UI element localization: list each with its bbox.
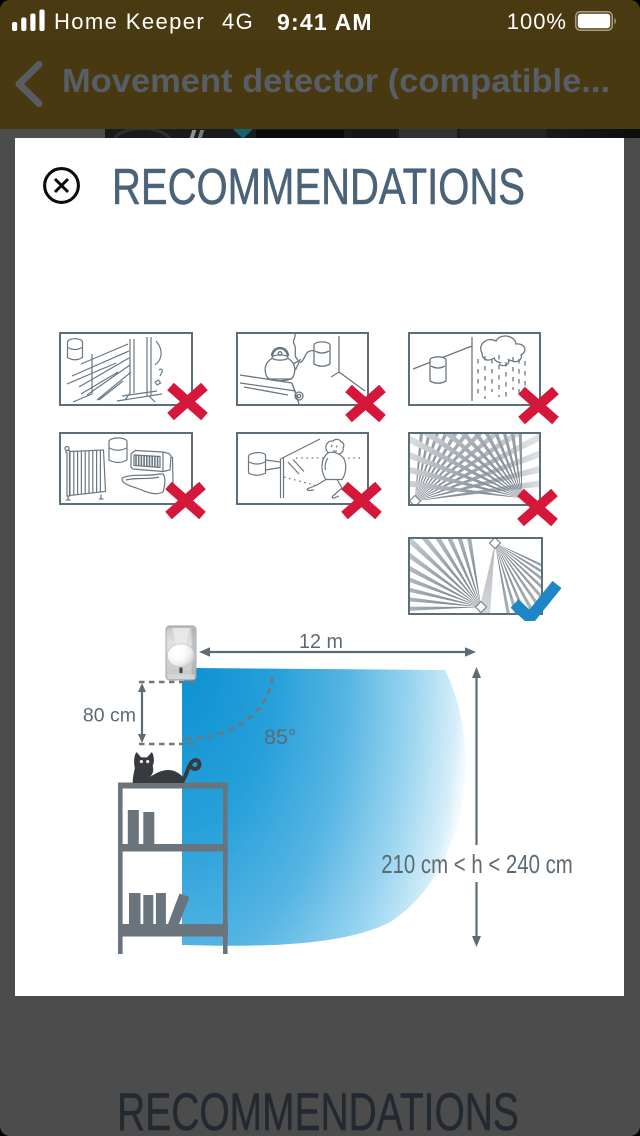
svg-text:210 cm < h < 240 cm: 210 cm < h < 240 cm <box>381 849 573 879</box>
svg-text:85°: 85° <box>264 725 297 749</box>
svg-text:80 cm: 80 cm <box>83 705 136 727</box>
svg-text:12 m: 12 m <box>299 630 343 653</box>
